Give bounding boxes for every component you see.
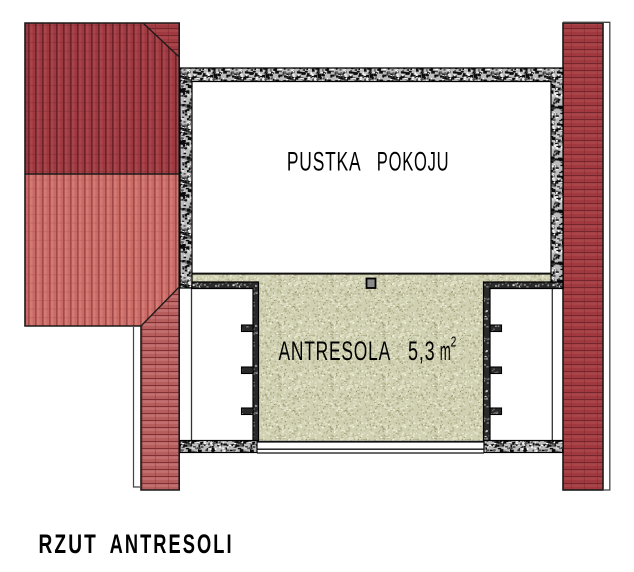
svg-text:PUSTKA: PUSTKA <box>287 147 362 177</box>
svg-text:m: m <box>440 336 451 366</box>
svg-text:POKOJU: POKOJU <box>377 147 450 177</box>
svg-text:ANTRESOLA: ANTRESOLA <box>279 336 392 366</box>
svg-text:ANTRESOLI: ANTRESOLI <box>110 529 234 559</box>
svg-text:5,3: 5,3 <box>408 336 436 366</box>
svg-text:RZUT: RZUT <box>39 529 99 559</box>
svg-text:2: 2 <box>451 334 457 351</box>
